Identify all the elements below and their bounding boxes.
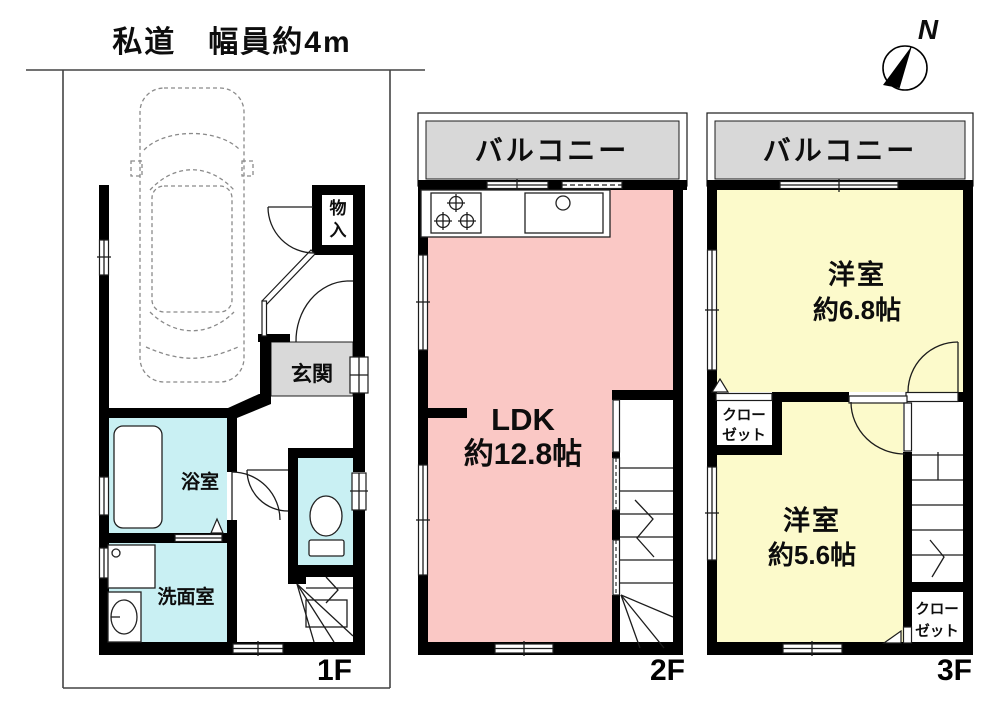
ldk-size-label: 約12.8帖 — [464, 438, 582, 471]
toilet-icon — [309, 496, 344, 556]
floor1-label: 1F — [317, 654, 352, 687]
balcony-2f-label: バルコニー — [475, 135, 629, 166]
floor3-label: 3F — [937, 654, 972, 687]
bath-label: 浴室 — [181, 470, 219, 493]
storage-label-line1: 物 — [330, 198, 347, 218]
closet-a-label-line1: クロー — [722, 407, 766, 424]
storage-label-line2: 入 — [330, 221, 347, 240]
closet-b-label-line1: クロー — [915, 601, 959, 618]
stairwell-2f-fill — [612, 400, 673, 642]
floor-2-plan: バルコニー — [416, 113, 687, 687]
corridor-partitions-1f — [262, 250, 315, 336]
compass-icon: N — [883, 14, 939, 90]
floorplan-page: 私道 幅員約4m N — [0, 0, 1000, 713]
floorplan-canvas: 私道 幅員約4m N — [0, 0, 1000, 713]
floor-1-plan: 物 入 玄関 浴室 洗面室 1F — [97, 88, 368, 687]
stairs-3f — [912, 452, 963, 577]
entrance-label: 玄関 — [291, 362, 333, 386]
closet-a-label-line2: ゼット — [722, 426, 766, 444]
room-b-label: 洋室 — [783, 505, 841, 536]
room-a-size-label: 約6.8帖 — [813, 295, 901, 325]
closet-b-label-line2: ゼット — [915, 622, 959, 640]
ldk-label: LDK — [491, 402, 555, 437]
room-a-fill — [717, 190, 963, 392]
closet-a-door — [716, 394, 772, 401]
room-a-label: 洋室 — [828, 259, 886, 290]
floor-3-plan: バルコニー — [705, 113, 973, 687]
kitchen-counter-icon — [421, 190, 610, 237]
road-label: 私道 幅員約4m — [112, 26, 351, 59]
closet-b-door — [904, 627, 912, 643]
vanity-icon — [108, 545, 155, 588]
washroom-label: 洗面室 — [157, 585, 214, 608]
floor2-label: 2F — [650, 654, 685, 687]
car-icon — [131, 88, 253, 382]
bathtub-icon — [114, 426, 162, 528]
room-b-size-label: 約5.6帖 — [768, 540, 856, 570]
washing-machine-icon — [108, 592, 141, 642]
compass-north-label: N — [918, 14, 939, 45]
balcony-3f-label: バルコニー — [763, 135, 917, 166]
sink-icon — [556, 196, 570, 210]
stairs-1f — [297, 577, 353, 642]
